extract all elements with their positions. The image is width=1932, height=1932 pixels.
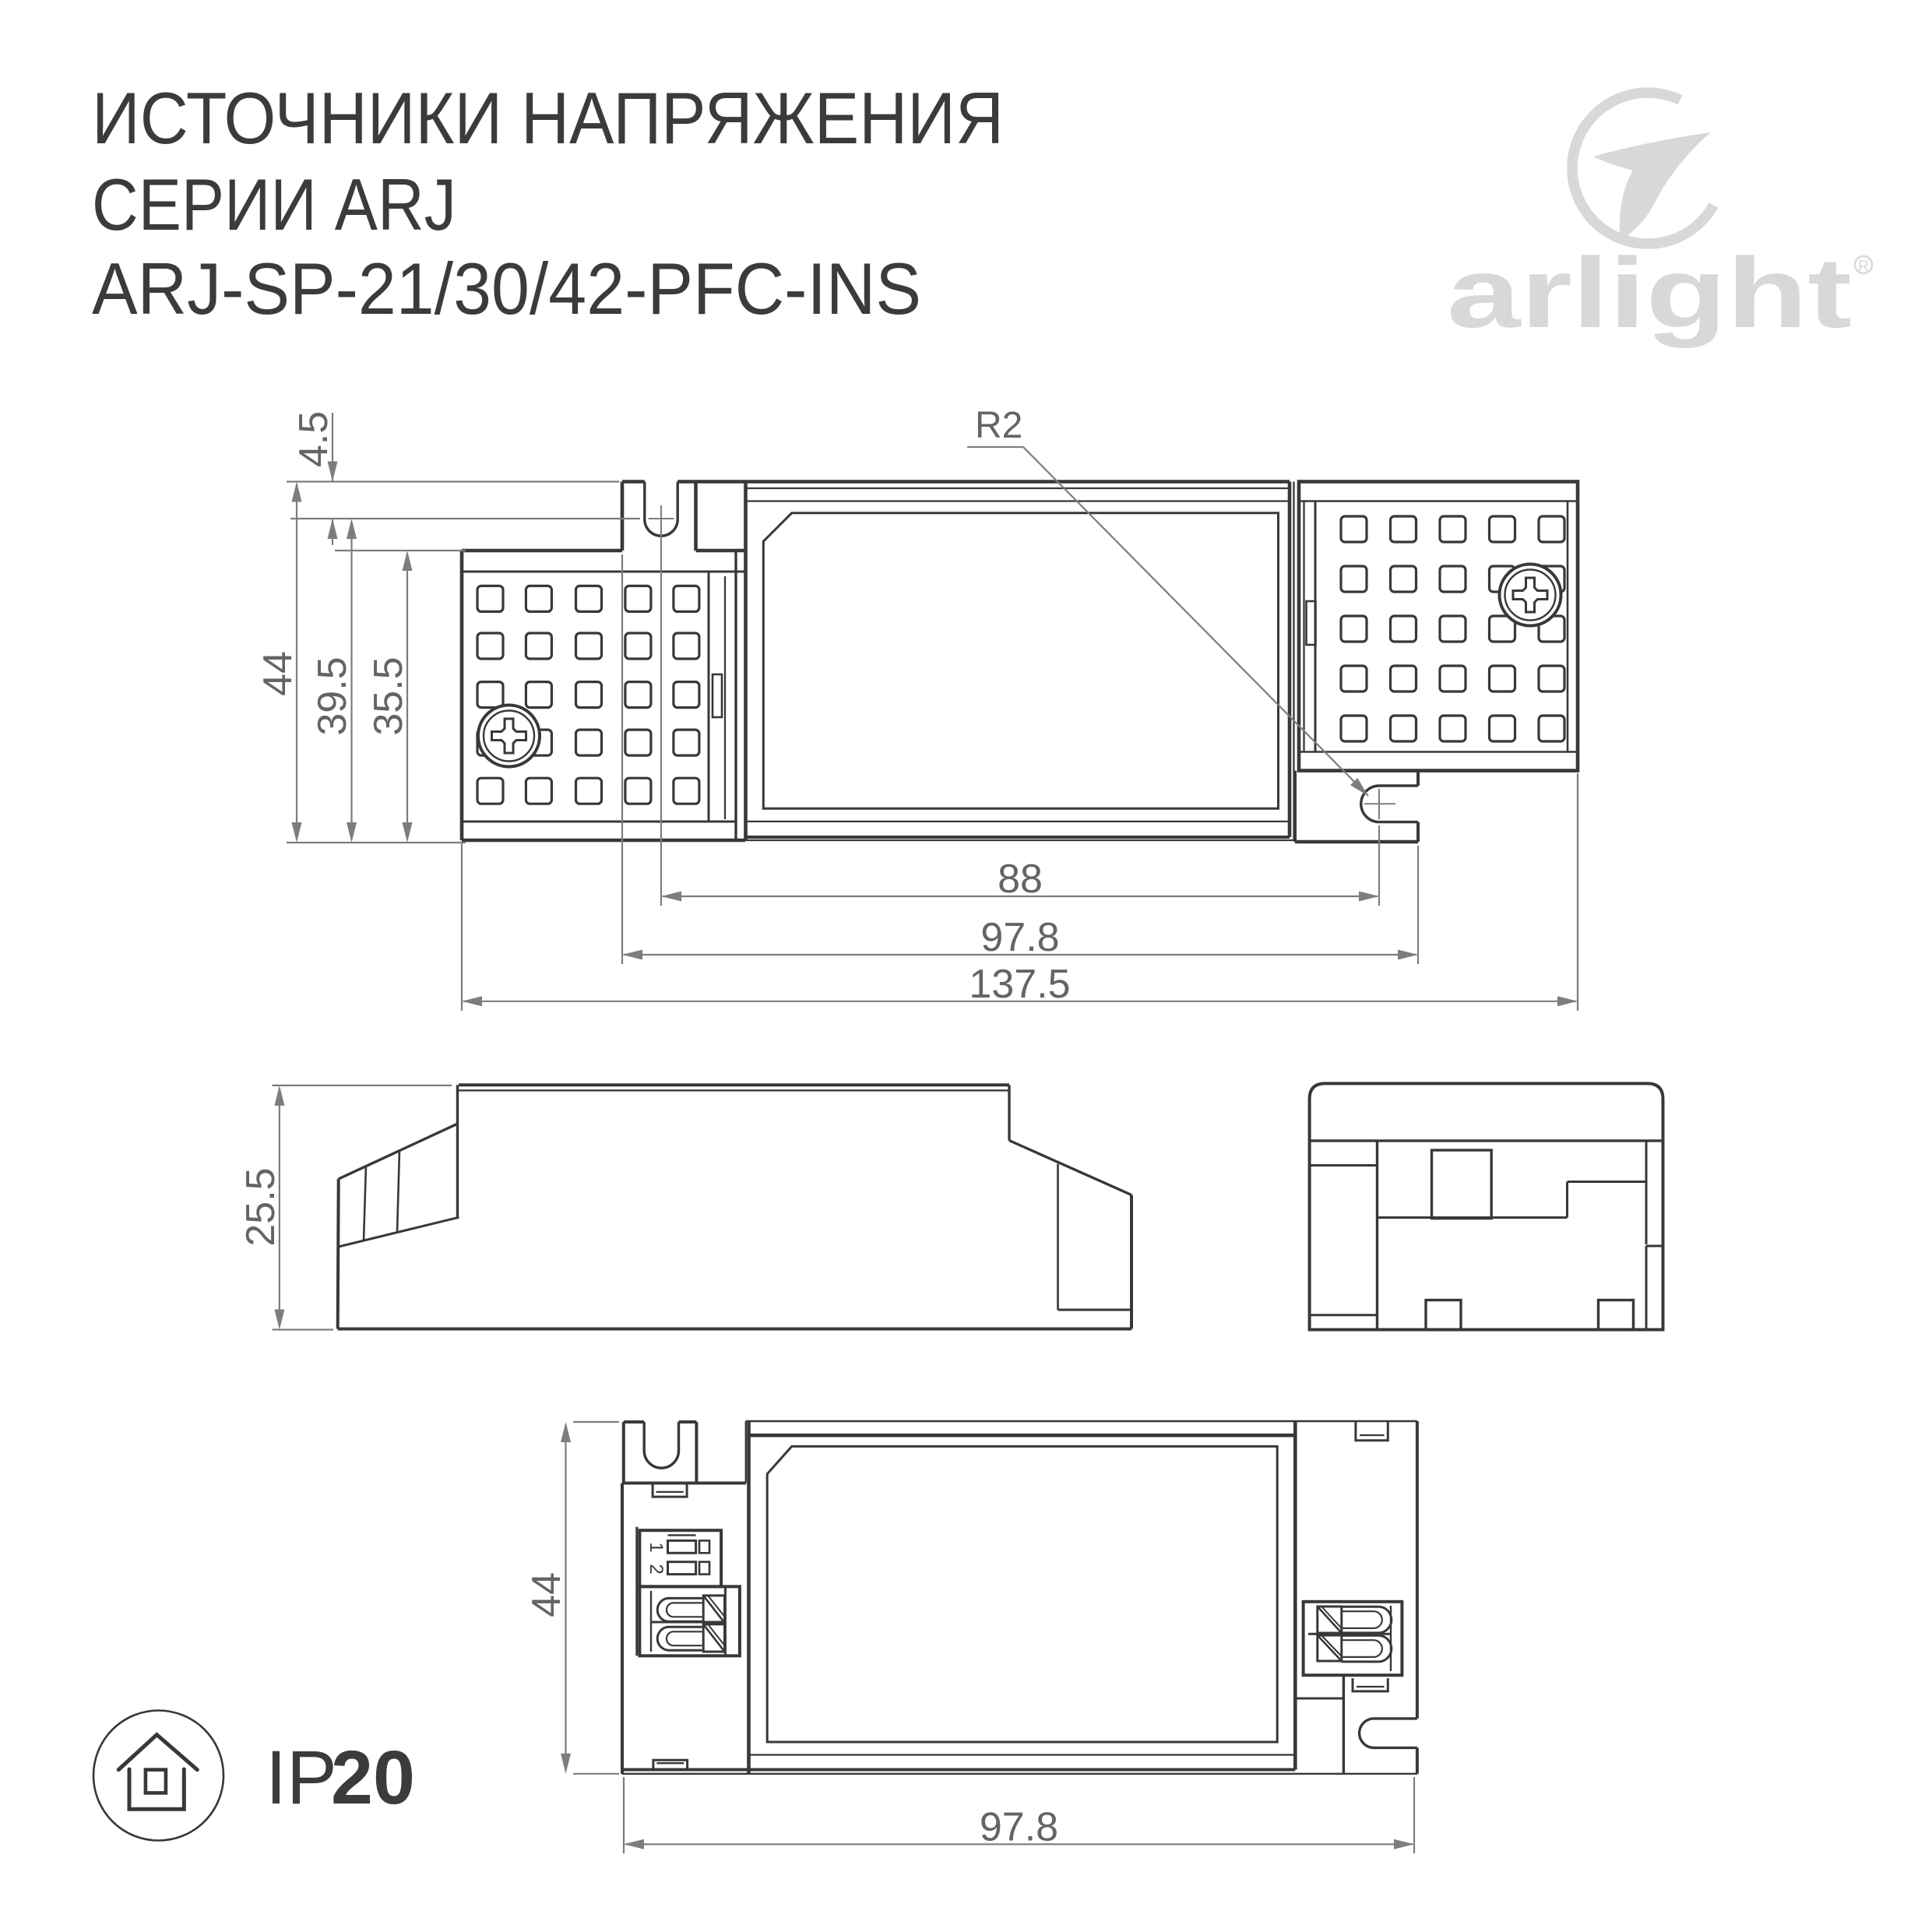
svg-text:4.5: 4.5 — [291, 411, 336, 467]
svg-text:ARJ-SP-21/30/42-PFC-INS: ARJ-SP-21/30/42-PFC-INS — [92, 248, 921, 329]
svg-text:R2: R2 — [975, 405, 1022, 446]
svg-text:arlight: arlight — [1447, 238, 1852, 349]
svg-text:44: 44 — [255, 651, 301, 696]
svg-text:88: 88 — [998, 857, 1043, 902]
svg-text:2: 2 — [646, 1564, 667, 1574]
svg-text:IP: IP — [266, 1735, 337, 1820]
svg-text:39.5: 39.5 — [310, 656, 355, 735]
svg-text:137.5: 137.5 — [969, 962, 1070, 1007]
svg-text:ИСТОЧНИКИ НАПРЯЖЕНИЯ: ИСТОЧНИКИ НАПРЯЖЕНИЯ — [92, 77, 1004, 159]
svg-text:97.8: 97.8 — [980, 1804, 1058, 1849]
svg-text:СЕРИИ ARJ: СЕРИИ ARJ — [92, 164, 456, 245]
svg-text:1: 1 — [646, 1542, 667, 1552]
svg-text:35.5: 35.5 — [366, 656, 411, 735]
svg-text:44: 44 — [524, 1572, 569, 1617]
svg-text:R: R — [1858, 259, 1869, 275]
svg-text:25.5: 25.5 — [238, 1167, 283, 1246]
svg-text:20: 20 — [331, 1735, 415, 1820]
svg-text:97.8: 97.8 — [980, 915, 1059, 960]
